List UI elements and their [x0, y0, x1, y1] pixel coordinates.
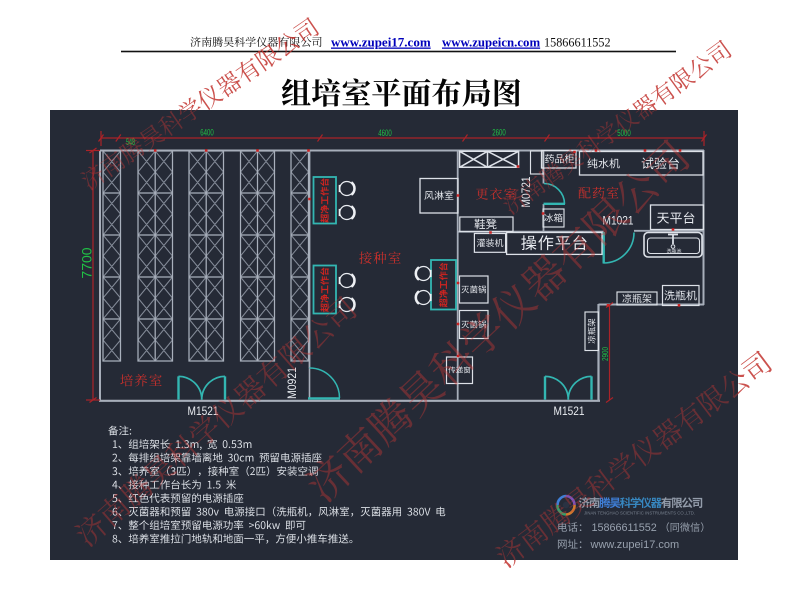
- svg-text:4600: 4600: [378, 128, 392, 138]
- svg-text:7700: 7700: [79, 247, 95, 278]
- svg-text:2900: 2900: [600, 347, 610, 361]
- svg-text:www.zupei17.com: www.zupei17.com: [331, 35, 431, 50]
- svg-text:6400: 6400: [200, 127, 214, 137]
- svg-text:15866611552: 15866611552: [592, 522, 657, 534]
- svg-text:www.zupei17.com: www.zupei17.com: [590, 539, 680, 551]
- svg-text:2600: 2600: [492, 127, 506, 137]
- svg-text:15866611552: 15866611552: [544, 36, 611, 50]
- svg-text:www.zupeicn.com: www.zupeicn.com: [442, 36, 540, 50]
- svg-text:JINAN TENGHAO SCIENTIFIC INSTR: JINAN TENGHAO SCIENTIFIC INSTRUMENTS CO.…: [584, 511, 695, 516]
- svg-text:M0921: M0921: [285, 367, 299, 399]
- svg-text:M1521: M1521: [554, 404, 585, 418]
